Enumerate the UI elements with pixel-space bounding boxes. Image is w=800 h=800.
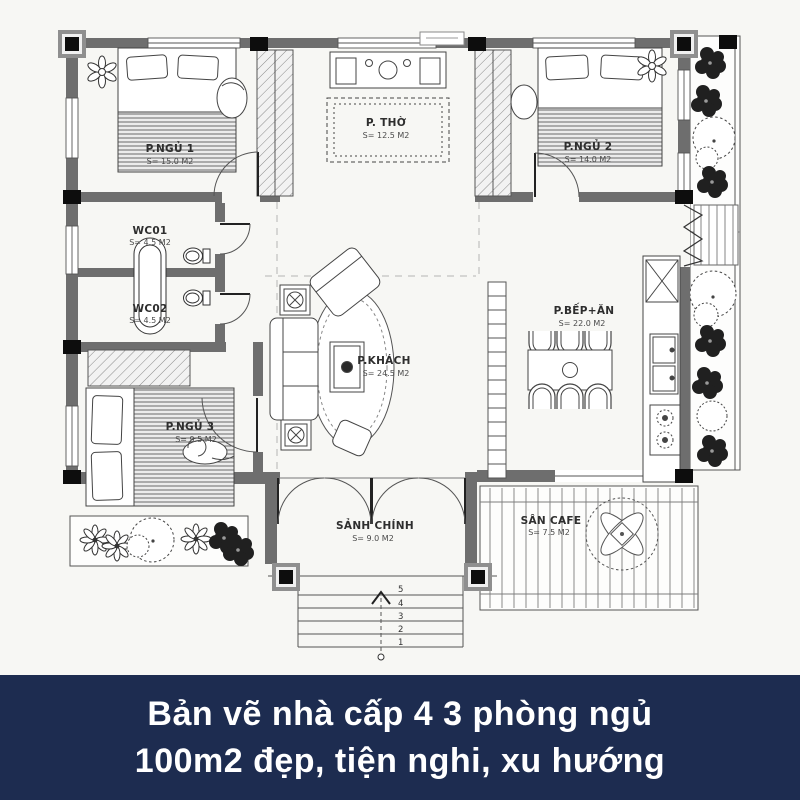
armchair xyxy=(511,85,537,119)
floor-plan-svg: 5 4 3 2 1 xyxy=(0,0,800,675)
flower-bed xyxy=(70,516,254,566)
room-label-living: P.KHÁCH xyxy=(357,354,410,367)
room-label-cafe: SÂN CAFE xyxy=(521,514,582,527)
room-area-living: S= 24.5 M2 xyxy=(363,369,410,378)
room-area-kitchen: S= 22.0 M2 xyxy=(559,319,606,328)
armchair xyxy=(217,78,247,118)
kitchen-counter xyxy=(643,256,680,482)
room-area-hall: S= 9.0 M2 xyxy=(352,534,394,543)
room-label-kitchen: P.BẾP+ĂN xyxy=(554,302,615,317)
room-area-wc01: S= 4.5 M2 xyxy=(129,238,171,247)
room-label-wc01: WC01 xyxy=(132,225,167,237)
room-area-bedroom-2: S= 14.0 M2 xyxy=(565,155,612,164)
room-label-bedroom-2: P.NGỦ 2 xyxy=(564,139,613,153)
room-area-bedroom-1: S= 15.0 M2 xyxy=(147,157,194,166)
poster: 5 4 3 2 1 xyxy=(0,0,800,800)
step-number-1: 1 xyxy=(398,638,403,648)
sofa xyxy=(270,318,318,420)
room-label-wc02: WC02 xyxy=(132,303,167,315)
toilet-icon xyxy=(184,248,211,264)
room-label-bedroom-1: P.NGỦ 1 xyxy=(146,141,195,155)
room-area-wc02: S= 4.5 M2 xyxy=(129,316,171,325)
cafe-terrace-deck xyxy=(480,486,698,610)
caption-line-2: 100m2 đẹp, tiện nghi, xu hướng xyxy=(135,740,665,783)
toilet-icon xyxy=(184,290,211,306)
room-area-bedroom-3: S= 9.5 M2 xyxy=(175,435,217,444)
floor-plan: 5 4 3 2 1 xyxy=(0,0,800,675)
room-area-worship: S= 12.5 M2 xyxy=(363,131,410,140)
room-area-cafe: S= 7.5 M2 xyxy=(528,528,570,537)
room-label-bedroom-3: P.NGỦ 3 xyxy=(166,419,215,433)
caption-line-1: Bản vẽ nhà cấp 4 3 phòng ngủ xyxy=(147,693,652,736)
step-number-3: 3 xyxy=(398,612,403,622)
step-numbers: 5 4 3 2 1 xyxy=(398,585,403,648)
room-label-hall: SẢNH CHÍNH xyxy=(336,518,414,532)
step-number-4: 4 xyxy=(398,599,403,609)
caption-banner: Bản vẽ nhà cấp 4 3 phòng ngủ 100m2 đẹp, … xyxy=(0,675,800,800)
dining-set xyxy=(528,331,612,409)
shelf-divider xyxy=(488,282,506,478)
step-number-5: 5 xyxy=(398,585,403,595)
room-label-worship: P. THỜ xyxy=(366,116,406,129)
step-number-2: 2 xyxy=(398,625,403,635)
